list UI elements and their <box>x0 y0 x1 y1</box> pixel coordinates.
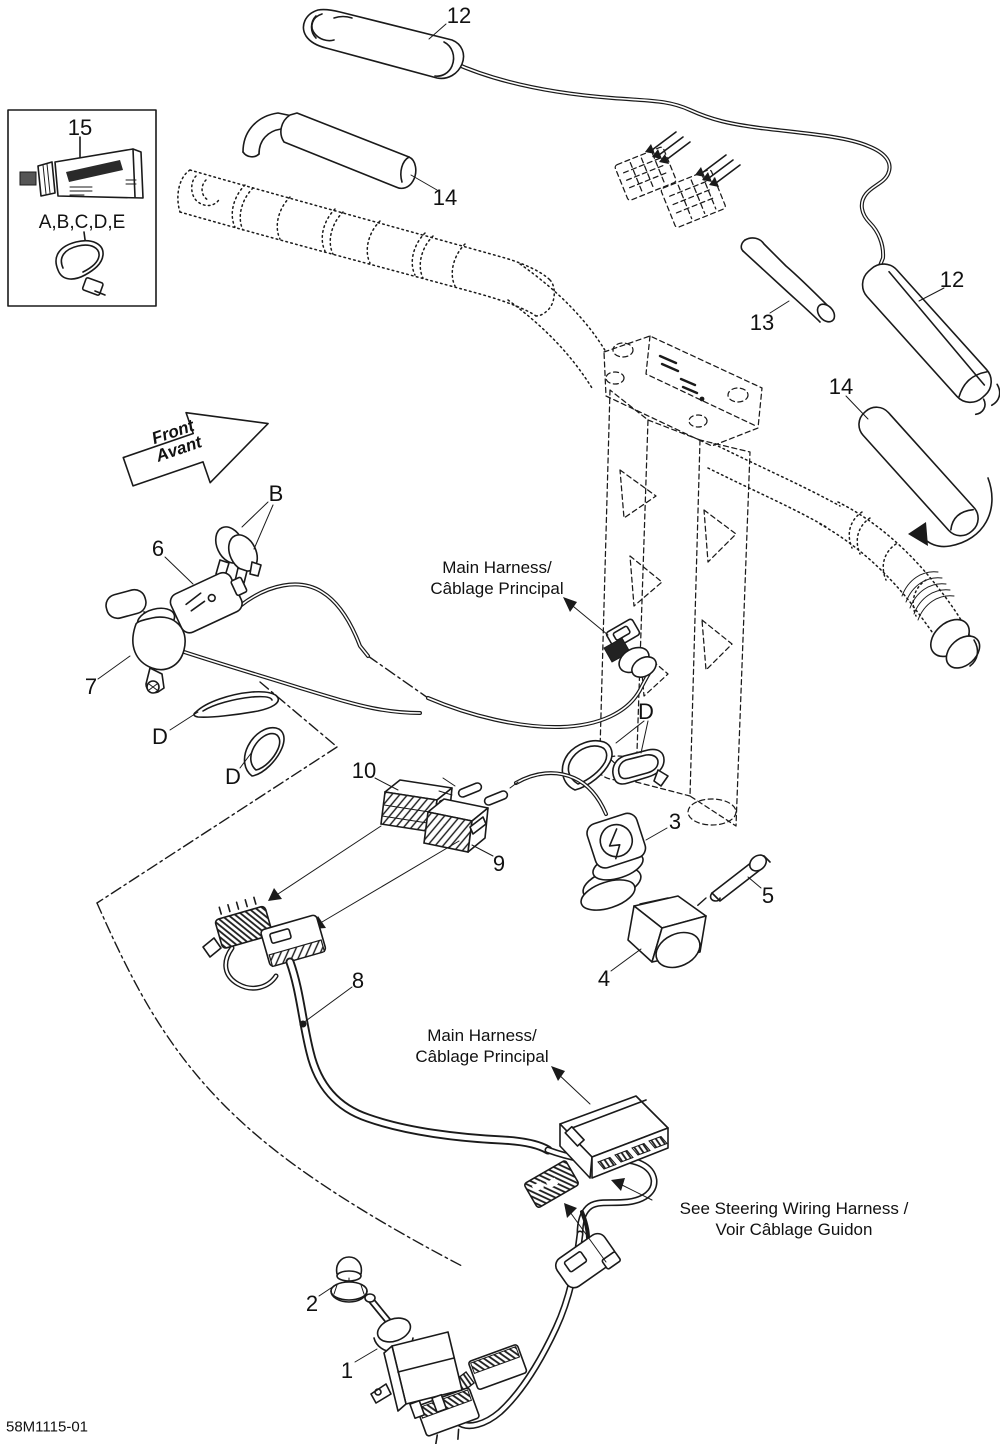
note-see-steering: See Steering Wiring Harness / Voir Câbla… <box>680 1198 909 1240</box>
callout-5: 5 <box>762 883 774 909</box>
terminal-pins-right <box>695 155 740 187</box>
steering-column-phantom <box>598 336 840 826</box>
note-main-harness-bottom: Main Harness/ Câblage Principal <box>415 1025 548 1067</box>
button-2 <box>331 1257 367 1302</box>
callout-7: 7 <box>85 674 97 700</box>
grip-sleeve-right <box>852 401 992 547</box>
callout-d-left-1: D <box>152 724 168 750</box>
grip-sleeve-left <box>243 113 416 188</box>
connector-main-harness-top <box>428 597 660 727</box>
heated-grip-left <box>303 10 889 268</box>
handlebar-grip-phantom-left <box>178 170 606 388</box>
callout-b: B <box>269 481 284 507</box>
connector-dangling <box>552 1230 621 1294</box>
clip-d-right-2 <box>613 749 668 786</box>
connector-9 <box>424 799 488 852</box>
callout-8: 8 <box>352 968 364 994</box>
note-line: Voir Câblage Guidon <box>680 1219 909 1240</box>
clip-d-left-2 <box>245 728 284 776</box>
callout-10: 10 <box>352 758 376 784</box>
column-markings <box>660 356 704 401</box>
arrow-from-connector-10 <box>268 826 381 901</box>
connector-hatched-small <box>524 1160 580 1208</box>
callout-abcde: A,B,C,D,E <box>39 212 126 234</box>
note-line: Main Harness/ <box>430 557 563 578</box>
boot-4 <box>628 896 706 974</box>
switch-6 <box>167 566 368 656</box>
connector-bottom-1 <box>468 1344 527 1390</box>
callout-15: 15 <box>68 115 92 141</box>
connector-phantom-b <box>660 169 726 228</box>
callout-2: 2 <box>306 1291 318 1317</box>
arrow-from-connector-9 <box>312 841 459 929</box>
callout-12-right: 12 <box>940 267 964 293</box>
callout-4: 4 <box>598 966 610 992</box>
callout-1: 1 <box>341 1358 353 1384</box>
callout-14-top: 14 <box>433 185 457 211</box>
note-line: Main Harness/ <box>415 1025 548 1046</box>
drawing-number: 58M1115-01 <box>6 1419 88 1436</box>
callout-d-left-2: D <box>225 764 241 790</box>
section-break-lines <box>97 656 706 1266</box>
arrow-to-main-harness-bottom <box>551 1066 590 1104</box>
clip-d-right-1 <box>562 741 612 790</box>
callout-12-top: 12 <box>447 3 471 29</box>
connector-main-harness-bottom <box>551 1066 668 1178</box>
callout-6: 6 <box>152 536 164 562</box>
connector-phantom-a <box>614 146 676 201</box>
switch-3 <box>577 811 648 916</box>
diagram-canvas: 15 A,B,C,D,E 12 14 13 12 14 B 6 7 D D D … <box>0 0 1000 1444</box>
terminal-pins-left <box>645 132 690 164</box>
callout-d-right: D <box>638 699 654 725</box>
callout-3: 3 <box>669 809 681 835</box>
arrow-to-main-harness-top <box>563 597 608 635</box>
note-main-harness-top: Main Harness/ Câblage Principal <box>430 557 563 599</box>
callout-14-right: 14 <box>829 374 853 400</box>
note-line: Câblage Principal <box>430 578 563 599</box>
callout-9: 9 <box>493 851 505 877</box>
note-line: Câblage Principal <box>415 1046 548 1067</box>
heated-grip-right <box>855 257 1000 419</box>
note-line: See Steering Wiring Harness / <box>680 1198 909 1219</box>
clip-d-left-1 <box>194 692 278 717</box>
grip-fingerprint-texture <box>902 572 954 620</box>
callout-13: 13 <box>750 310 774 336</box>
